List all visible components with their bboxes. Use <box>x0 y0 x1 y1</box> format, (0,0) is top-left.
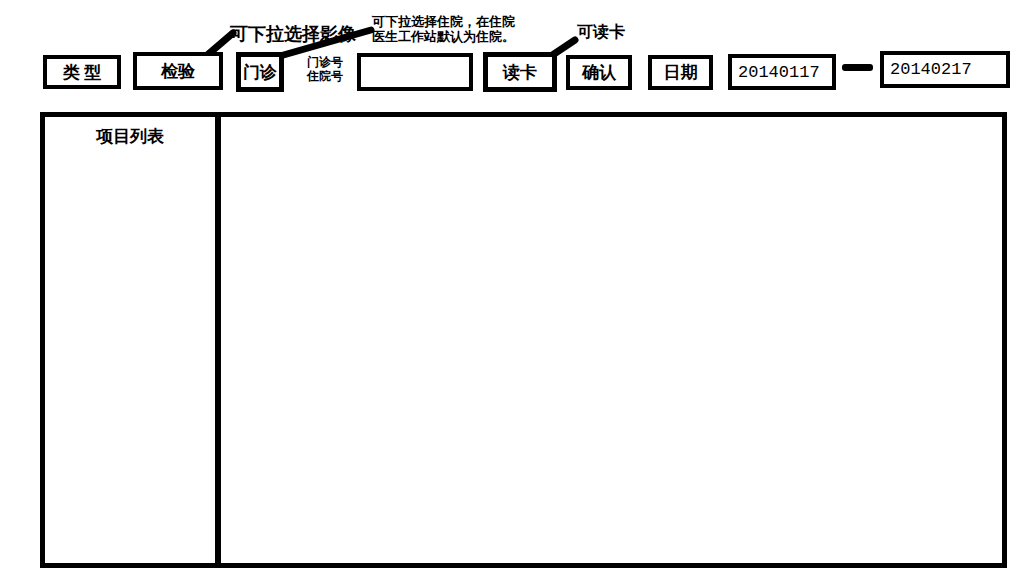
date-range-dash <box>842 64 873 71</box>
visit-type-annotation: 可下拉选择住院，在住院 医生工作站默认为住院。 <box>372 14 515 44</box>
visit-type-annotation-line1: 可下拉选择住院，在住院 <box>372 14 515 29</box>
patient-id-label-line2: 住院号 <box>300 69 350 83</box>
item-list-panel[interactable]: 项目列表 <box>45 117 215 563</box>
main-frame: 项目列表 <box>40 112 1007 568</box>
visit-type-annotation-line2: 医生工作站默认为住院。 <box>372 29 515 44</box>
patient-id-label-line1: 门诊号 <box>300 55 350 69</box>
medical-workstation-screen: 可下拉选择影像 可下拉选择住院，在住院 医生工作站默认为住院。 可读卡 类 型 … <box>0 0 1017 581</box>
read-card-button[interactable]: 读卡 <box>483 52 557 92</box>
exam-type-select[interactable]: 检验 <box>133 52 223 90</box>
visit-type-select[interactable]: 门诊 <box>236 52 284 92</box>
content-area <box>221 117 1002 563</box>
confirm-button[interactable]: 确认 <box>566 55 632 90</box>
exam-type-annotation: 可下拉选择影像 <box>230 22 356 46</box>
date-start-input[interactable] <box>728 54 836 90</box>
item-list-title: 项目列表 <box>45 117 215 148</box>
patient-id-label: 门诊号 住院号 <box>300 55 350 83</box>
date-end-input[interactable] <box>880 51 1010 88</box>
patient-id-input[interactable] <box>357 53 473 91</box>
date-label-box: 日期 <box>648 55 713 90</box>
read-card-annotation: 可读卡 <box>577 22 625 43</box>
type-label-box: 类 型 <box>43 55 121 89</box>
